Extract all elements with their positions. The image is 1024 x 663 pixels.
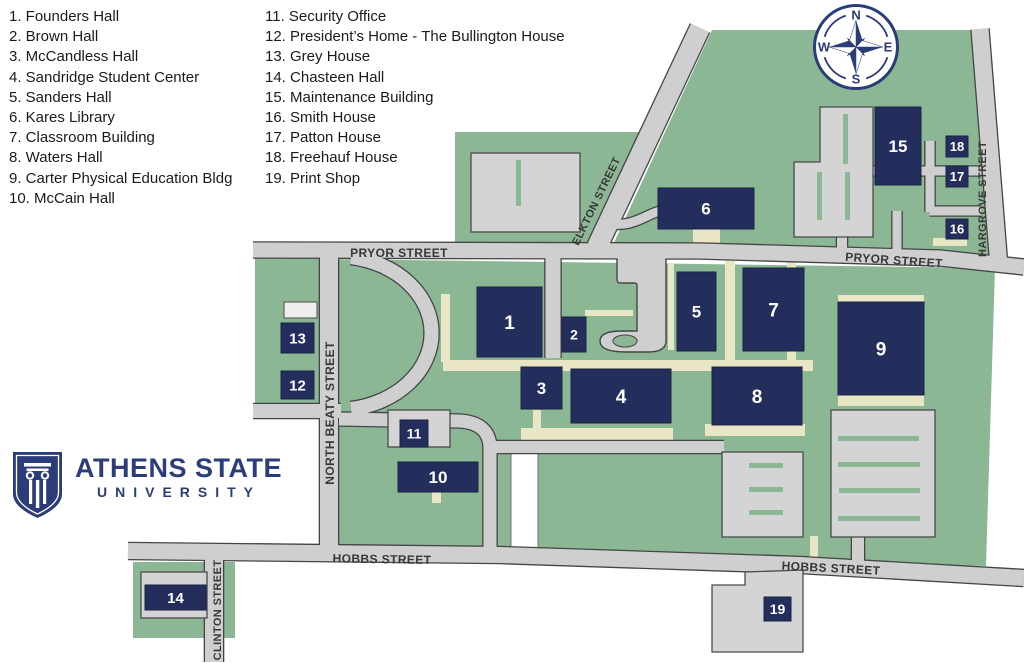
walkway-path (533, 410, 541, 430)
parking-stripe (843, 114, 848, 164)
legend-item: 2. Brown Hall (9, 27, 232, 47)
legend-item: 19. Print Shop (265, 169, 565, 189)
building-7-number: 7 (768, 300, 779, 321)
university-logo: ATHENS STATE UNIVERSITY (75, 453, 282, 501)
white-gap (511, 452, 538, 555)
building-18-number: 18 (950, 139, 964, 154)
compass-letter-N: N (851, 8, 860, 23)
legend-item: 17. Patton House (265, 128, 565, 148)
building-6-number: 6 (701, 200, 710, 219)
hobbs-street-label-west: HOBBS STREET (332, 551, 431, 567)
walkway-path (668, 264, 674, 350)
building-13-number: 13 (289, 330, 306, 347)
parking-stripe (838, 436, 919, 441)
north-beaty-street-label: NORTH BEATY STREET (323, 341, 337, 485)
pryor-street-label-west: PRYOR STREET (350, 246, 448, 260)
building-9-number: 9 (876, 339, 887, 360)
legend-item: 18. Freehauf House (265, 148, 565, 168)
legend-item: 3. McCandless Hall (9, 47, 232, 67)
parking-stripe (845, 172, 850, 220)
legend-item: 6. Kares Library (9, 108, 232, 128)
parking-stripe (839, 488, 920, 493)
logo-subtitle: UNIVERSITY (97, 483, 282, 501)
building-12-number: 12 (289, 377, 306, 394)
walkway-path (432, 491, 441, 503)
building-14-number: 14 (167, 590, 184, 607)
campus-map-page: 12345678910111213141516171819PRYOR STREE… (0, 0, 1024, 663)
building-footprint (284, 302, 317, 318)
traffic-island (613, 335, 637, 347)
compass-letter-W: W (818, 40, 831, 55)
legend-item: 12. President’s Home - The Bullington Ho… (265, 27, 565, 47)
walkway-path (441, 294, 450, 362)
building-17-number: 17 (950, 169, 964, 184)
parking-stripe (749, 463, 783, 468)
parking-stripe (838, 462, 920, 467)
building-1-number: 1 (504, 313, 515, 334)
legend-item: 13. Grey House (265, 47, 565, 67)
legend-item: 11. Security Office (265, 7, 565, 27)
legend-item: 15. Maintenance Building (265, 88, 565, 108)
building-16-number: 16 (950, 222, 964, 237)
legend-item: 8. Waters Hall (9, 148, 232, 168)
legend-column-1: 1. Founders Hall2. Brown Hall3. McCandle… (9, 7, 232, 209)
building-10-number: 10 (429, 468, 448, 487)
building-4-number: 4 (616, 387, 627, 408)
walkway-path (705, 424, 805, 436)
legend-item: 1. Founders Hall (9, 7, 232, 27)
compass-rose: NESW (815, 6, 898, 89)
legend-column-2: 11. Security Office12. President’s Home … (265, 7, 565, 189)
compass-letter-S: S (852, 72, 861, 87)
walkway-path (725, 260, 735, 360)
building-5-number: 5 (692, 303, 701, 322)
building-15-number: 15 (889, 137, 908, 156)
parking-stripe (838, 516, 920, 521)
legend-item: 9. Carter Physical Education Bldg (9, 169, 232, 189)
building-19-number: 19 (770, 601, 786, 617)
walkway-path (585, 310, 633, 316)
parking-stripe (749, 510, 783, 515)
parking-stripe (817, 172, 822, 220)
legend-item: 7. Classroom Building (9, 128, 232, 148)
legend-item: 4. Sandridge Student Center (9, 68, 232, 88)
legend-item: 14. Chasteen Hall (265, 68, 565, 88)
logo-title: ATHENS STATE (75, 453, 282, 483)
legend-item: 16. Smith House (265, 108, 565, 128)
parking-stripe (749, 487, 783, 492)
compass-letter-E: E (884, 40, 893, 55)
walkway-path (521, 428, 673, 440)
legend-item: 10. McCain Hall (9, 189, 232, 209)
walkway-path (693, 228, 720, 243)
hargrove-street-label: HARGROVE STREET (977, 141, 989, 257)
building-8-number: 8 (752, 387, 763, 408)
clinton-street-label: CLINTON STREET (212, 560, 224, 661)
building-3-number: 3 (537, 379, 546, 398)
legend-item: 5. Sanders Hall (9, 88, 232, 108)
logo-shield-icon (13, 452, 62, 518)
building-11-number: 11 (407, 426, 422, 442)
walkway-path (838, 395, 924, 406)
building-2-number: 2 (570, 327, 578, 343)
